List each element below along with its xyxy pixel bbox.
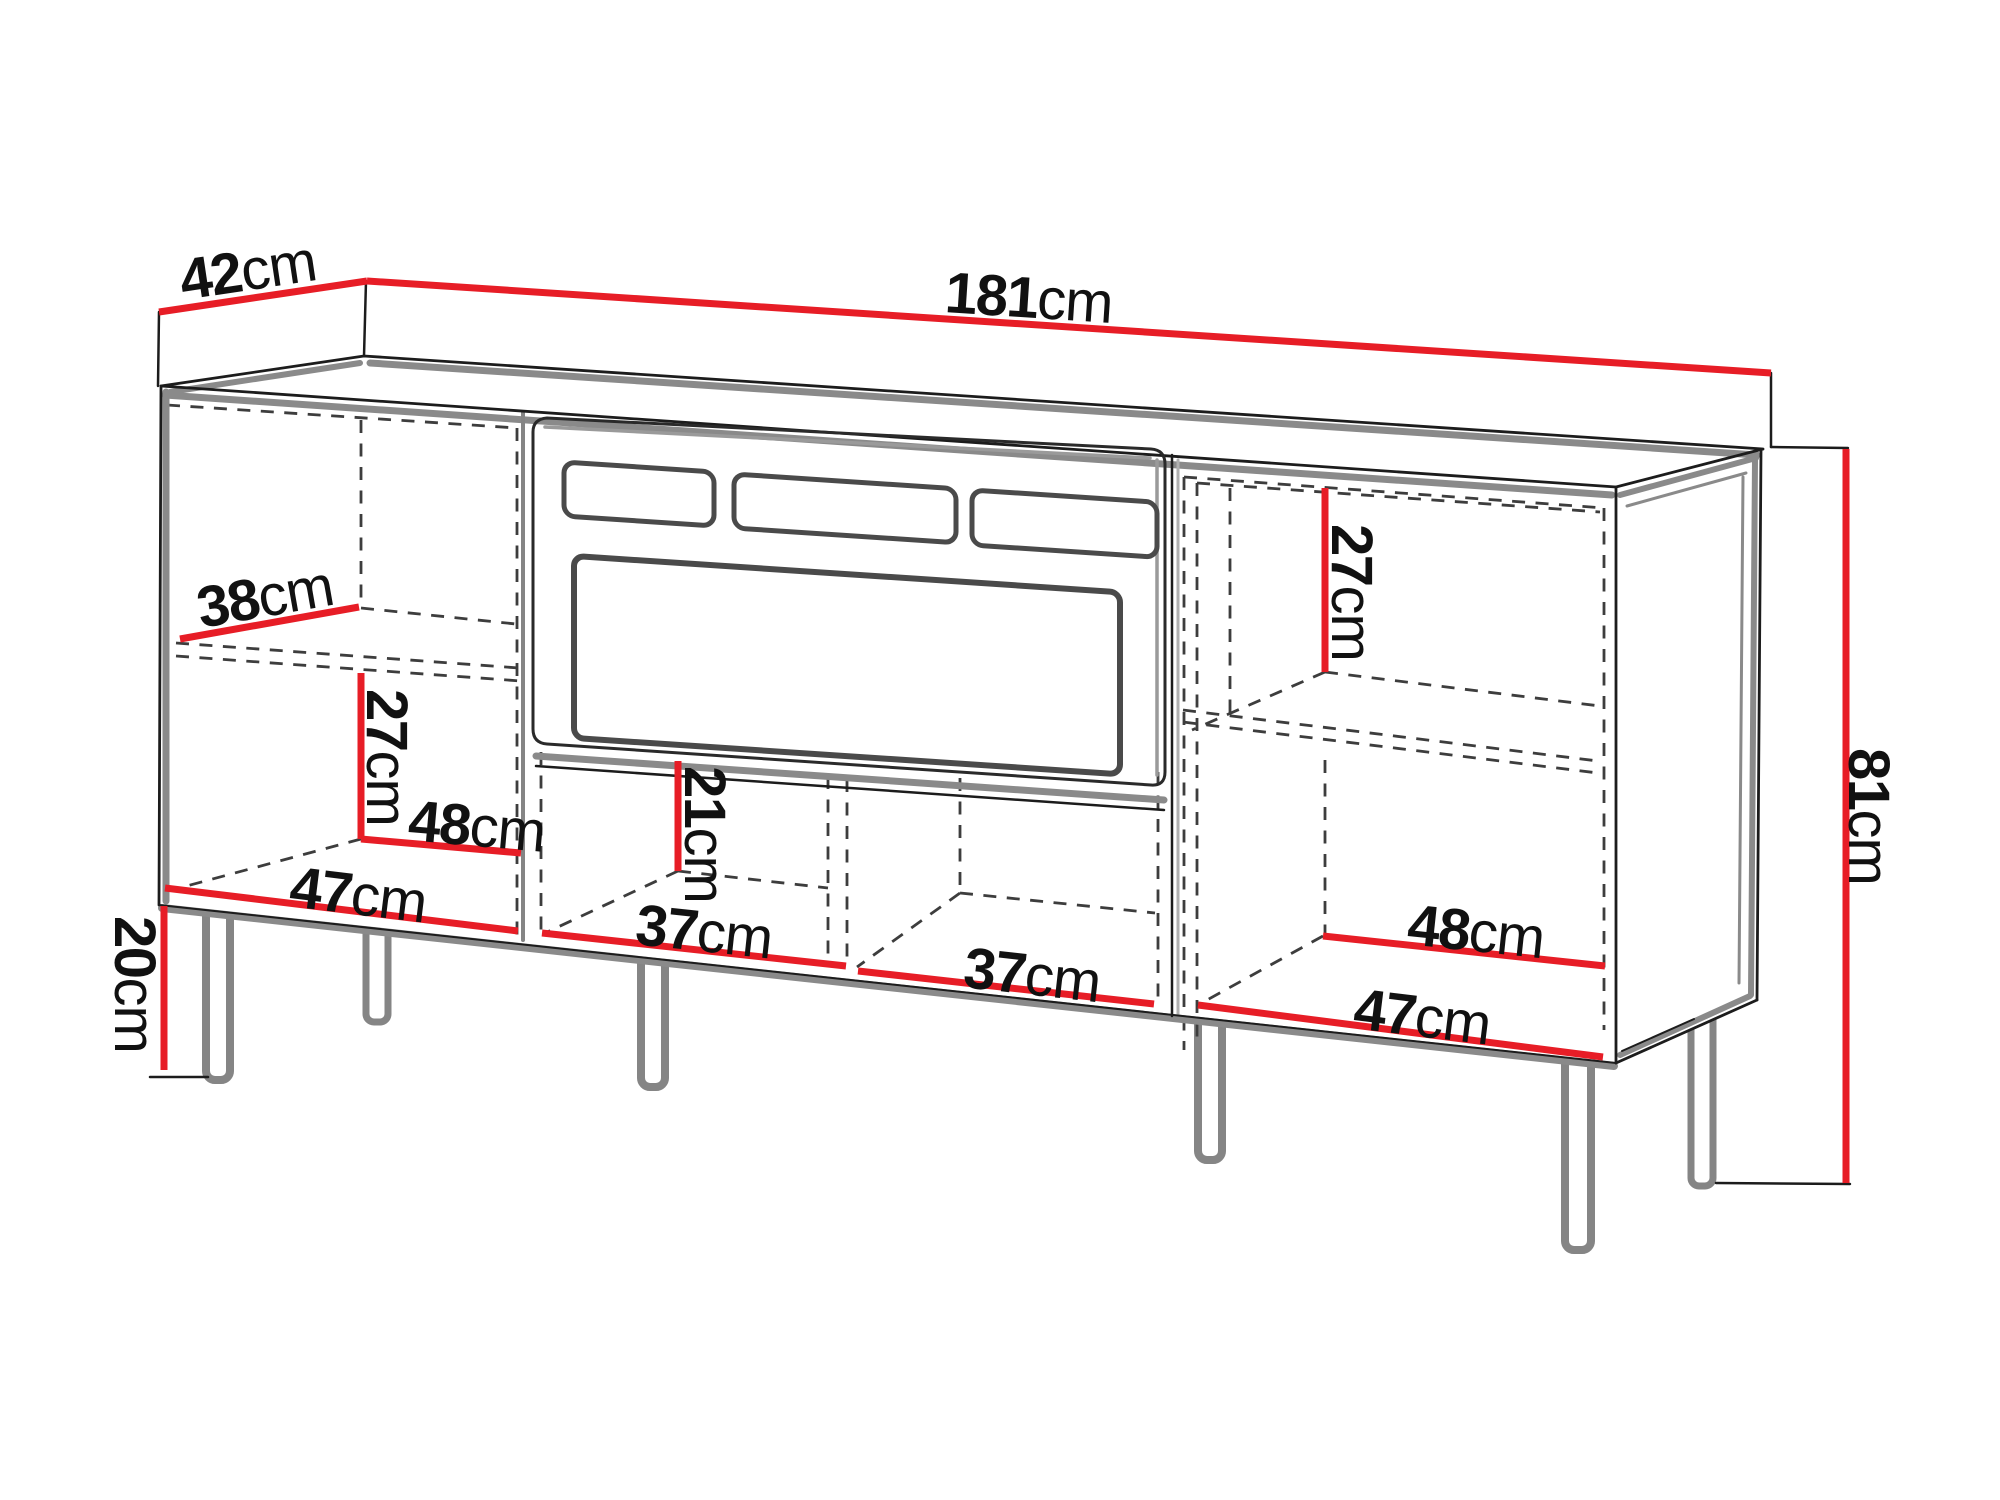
svg-text:181cm: 181cm <box>943 260 1115 336</box>
svg-text:21cm: 21cm <box>672 766 737 903</box>
svg-text:81cm: 81cm <box>1836 748 1901 885</box>
svg-text:20cm: 20cm <box>102 916 167 1053</box>
svg-text:48cm: 48cm <box>406 788 548 865</box>
svg-text:27cm: 27cm <box>1319 524 1384 661</box>
